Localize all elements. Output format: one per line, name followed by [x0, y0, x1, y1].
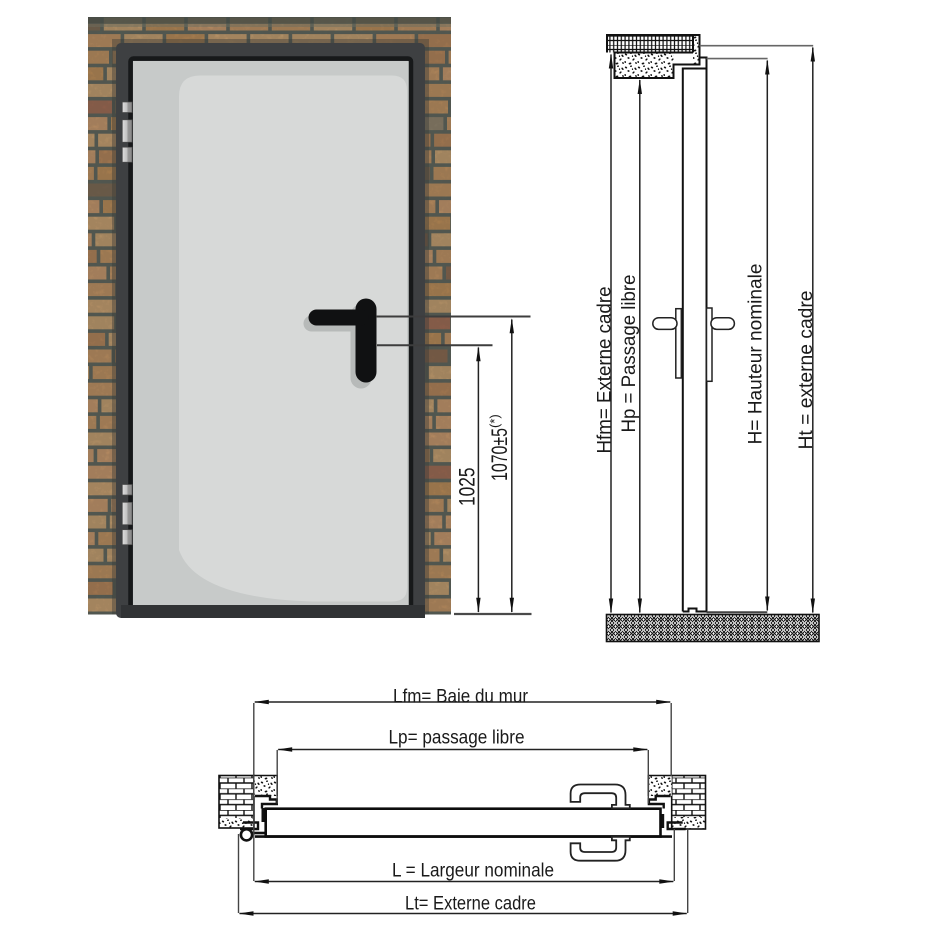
svg-text:1025: 1025 — [455, 468, 480, 507]
svg-text:Lt= Externe cadre: Lt= Externe cadre — [405, 894, 536, 915]
svg-text:L = Largeur nominale: L = Largeur nominale — [392, 861, 554, 882]
svg-text:Lfm= Baie du mur: Lfm= Baie du mur — [393, 687, 529, 708]
svg-text:1070±5(*): 1070±5(*) — [487, 414, 512, 481]
svg-text:Lp= passage libre: Lp= passage libre — [389, 728, 525, 749]
svg-text:Ht = externe cadre: Ht = externe cadre — [796, 291, 817, 450]
svg-text:Hfm= Externe cadre: Hfm= Externe cadre — [595, 287, 616, 454]
svg-text:H= Hauteur nominale: H= Hauteur nominale — [746, 264, 767, 445]
svg-text:Hp = Passage libre: Hp = Passage libre — [619, 275, 640, 433]
